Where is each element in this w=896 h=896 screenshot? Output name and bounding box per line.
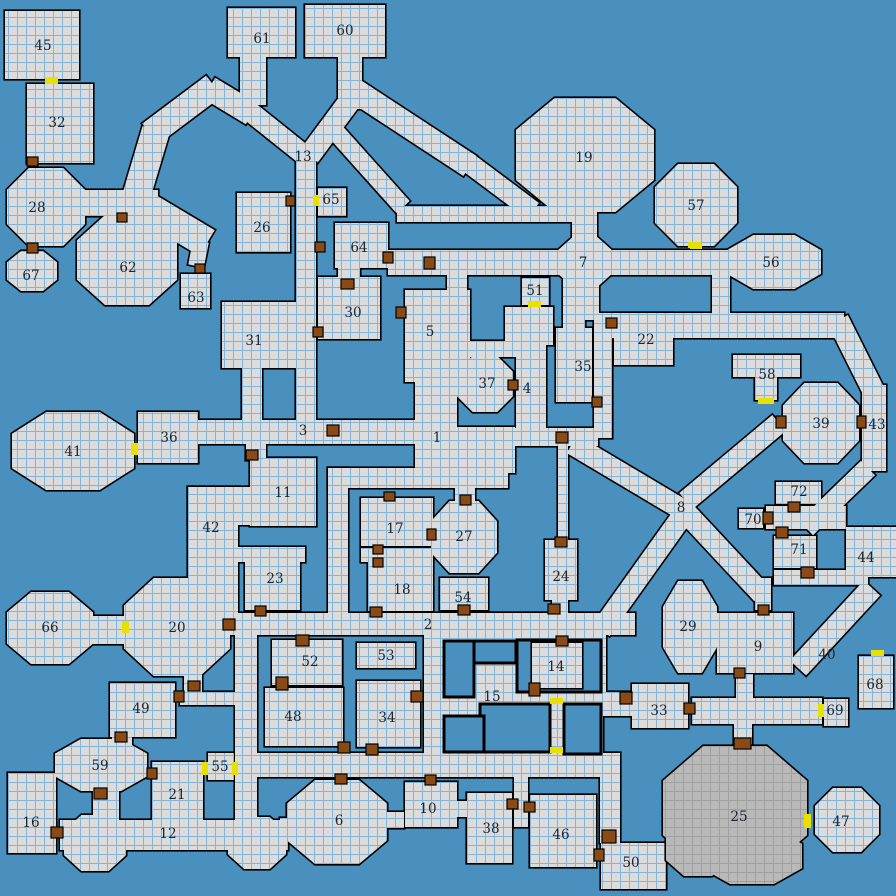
room-label-36: 36 [160, 430, 177, 446]
secret-door-marker [758, 398, 774, 404]
door-marker [424, 257, 435, 269]
room-label-37: 37 [478, 376, 495, 392]
secret-door-marker [45, 77, 58, 84]
room-label-72: 72 [790, 484, 807, 500]
room-label-12: 12 [159, 826, 176, 842]
door-marker [335, 774, 347, 784]
door-marker [458, 605, 470, 615]
door-marker [94, 788, 107, 799]
secret-door-marker [550, 747, 563, 753]
room-label-47: 47 [832, 814, 849, 830]
room-label-60: 60 [336, 23, 353, 39]
room-label-9: 9 [754, 639, 763, 655]
room-label-30: 30 [344, 305, 361, 321]
door-marker [327, 425, 339, 436]
door-marker [27, 243, 38, 253]
room-label-24: 24 [552, 569, 569, 585]
door-marker [27, 157, 38, 166]
secret-door-marker [232, 762, 238, 775]
room-label-17: 17 [386, 521, 403, 537]
door-marker [383, 252, 393, 263]
door-marker [147, 768, 157, 779]
door-marker [548, 604, 560, 614]
room-label-53: 53 [377, 648, 394, 664]
room-label-48: 48 [284, 709, 301, 725]
room-label-6: 6 [335, 813, 344, 829]
door-marker [776, 416, 786, 428]
room-label-10: 10 [419, 801, 436, 817]
room-label-56: 56 [762, 255, 779, 271]
door-marker [338, 742, 350, 753]
room-label-8: 8 [677, 500, 686, 516]
door-marker [188, 681, 200, 691]
room-label-71: 71 [790, 542, 807, 558]
dungeon-map: 1234567891011121314151617181920212223242… [0, 0, 896, 896]
secret-door-marker [528, 301, 541, 307]
door-marker [594, 849, 604, 861]
room-label-25: 25 [730, 809, 747, 825]
room-label-13: 13 [294, 149, 311, 165]
door-marker [396, 307, 406, 318]
room-label-54: 54 [454, 590, 471, 606]
room-label-33: 33 [650, 703, 667, 719]
room-label-57: 57 [687, 198, 704, 214]
door-marker [286, 196, 295, 206]
room-label-21: 21 [168, 787, 185, 803]
room-label-16: 16 [22, 815, 39, 831]
room-label-45: 45 [34, 38, 51, 54]
door-marker [117, 213, 127, 222]
secret-door-marker [122, 621, 129, 633]
room-label-4: 4 [523, 381, 532, 397]
room-label-51: 51 [526, 283, 543, 299]
door-marker [370, 607, 382, 617]
door-marker [255, 606, 266, 616]
room-label-20: 20 [168, 620, 185, 636]
room-label-35: 35 [574, 359, 591, 375]
room-label-52: 52 [301, 654, 318, 670]
room-label-50: 50 [622, 855, 639, 871]
room-label-42: 42 [202, 520, 219, 536]
room-label-68: 68 [866, 677, 883, 693]
secret-door-marker [313, 195, 319, 206]
door-marker [508, 380, 518, 390]
door-marker [620, 692, 632, 704]
door-marker [556, 636, 568, 646]
door-marker [425, 775, 436, 785]
door-marker [684, 703, 695, 714]
room-label-3: 3 [299, 423, 308, 439]
door-marker [296, 635, 309, 646]
room-label-46: 46 [552, 827, 569, 843]
room-label-19: 19 [575, 150, 592, 166]
door-marker [51, 827, 63, 838]
door-marker [115, 732, 127, 742]
secret-door-marker [550, 698, 563, 704]
room-label-23: 23 [266, 571, 283, 587]
room-label-69: 69 [826, 703, 843, 719]
door-marker [174, 691, 184, 702]
door-marker [384, 492, 395, 501]
room-label-40: 40 [818, 647, 835, 663]
room-label-22: 22 [637, 332, 654, 348]
door-marker [315, 242, 325, 252]
door-marker [734, 668, 745, 678]
room-label-18: 18 [393, 582, 410, 598]
room-label-59: 59 [91, 758, 108, 774]
room-label-7: 7 [579, 255, 588, 271]
door-marker [763, 512, 773, 524]
room-label-38: 38 [482, 821, 499, 837]
room-label-62: 62 [119, 260, 136, 276]
door-marker [411, 691, 423, 702]
room-label-5: 5 [426, 324, 435, 340]
room-label-32: 32 [48, 115, 65, 131]
door-marker [223, 619, 235, 630]
dungeon-map-canvas: 1234567891011121314151617181920212223242… [0, 0, 896, 896]
door-marker [373, 558, 383, 567]
room-label-66: 66 [41, 620, 58, 636]
room-label-63: 63 [187, 290, 204, 306]
door-marker [246, 450, 258, 460]
room-label-31: 31 [245, 333, 262, 349]
door-marker [195, 264, 205, 273]
room-label-26: 26 [253, 220, 270, 236]
door-marker [592, 397, 602, 407]
door-marker [524, 802, 535, 812]
room-label-43: 43 [868, 417, 885, 433]
secret-door-marker [804, 814, 811, 828]
door-marker [529, 683, 540, 696]
room-label-15: 15 [483, 689, 500, 705]
door-marker [507, 799, 518, 809]
room-label-65: 65 [322, 192, 339, 208]
room-label-49: 49 [132, 701, 149, 717]
door-marker [276, 677, 288, 690]
secret-door-marker [690, 244, 702, 249]
door-marker [366, 744, 378, 755]
door-marker [788, 502, 800, 512]
room-label-27: 27 [455, 529, 472, 545]
secret-door-marker [871, 650, 884, 656]
room-label-55: 55 [211, 759, 228, 775]
door-marker [555, 537, 567, 547]
door-marker [776, 527, 788, 538]
room-label-44: 44 [857, 550, 874, 566]
door-marker [801, 567, 814, 578]
room-label-58: 58 [758, 367, 775, 383]
door-marker [857, 416, 866, 428]
room-label-28: 28 [28, 200, 45, 216]
room-label-70: 70 [744, 512, 761, 528]
room-label-2: 2 [424, 617, 433, 633]
room-label-34: 34 [378, 710, 395, 726]
door-marker [556, 432, 568, 443]
secret-door-marker [131, 443, 138, 455]
room-label-61: 61 [253, 31, 270, 47]
room-label-14: 14 [547, 659, 564, 675]
room-label-1: 1 [433, 430, 442, 446]
door-marker [427, 529, 436, 540]
door-marker [758, 605, 769, 615]
room-label-39: 39 [812, 416, 829, 432]
room-label-67: 67 [22, 268, 39, 284]
door-marker [460, 495, 471, 505]
room-label-29: 29 [679, 619, 696, 635]
secret-door-marker [202, 762, 208, 775]
door-marker [313, 327, 323, 337]
room-label-11: 11 [274, 485, 291, 501]
door-marker [734, 738, 751, 749]
door-marker [602, 830, 616, 843]
door-marker [341, 279, 354, 289]
secret-door-marker [818, 704, 824, 717]
room-label-41: 41 [64, 444, 81, 460]
door-marker [606, 318, 617, 328]
door-marker [373, 545, 383, 554]
room-label-64: 64 [350, 240, 367, 256]
